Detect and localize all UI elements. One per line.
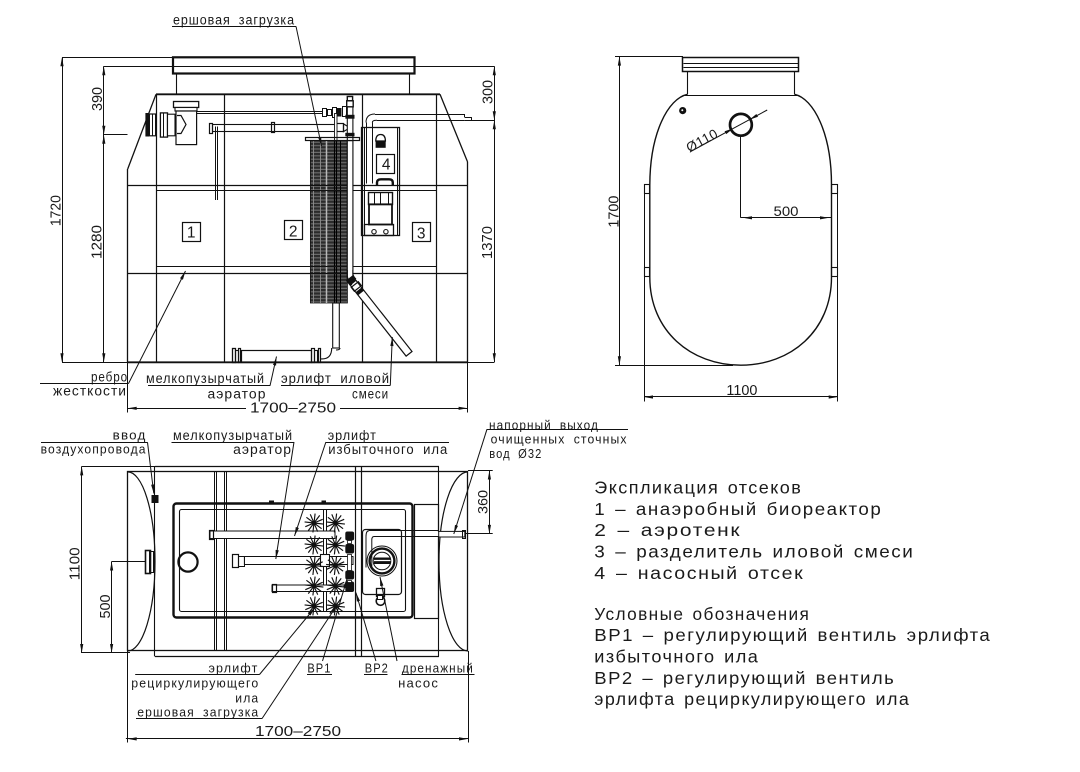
- svg-text:1720: 1720: [49, 195, 65, 226]
- svg-text:1370: 1370: [480, 226, 496, 259]
- svg-text:1 – анаэробный биореактор: 1 – анаэробный биореактор: [594, 499, 882, 519]
- svg-text:эрлифт: эрлифт: [328, 428, 377, 443]
- svg-text:1700: 1700: [607, 196, 623, 228]
- svg-text:мелкопузырчатый: мелкопузырчатый: [146, 371, 265, 386]
- svg-text:аэратор: аэратор: [208, 387, 267, 402]
- svg-text:вод Ø32: вод Ø32: [489, 446, 542, 461]
- svg-text:3 – разделитель иловой см: 3 – разделитель иловой смеси: [594, 542, 914, 562]
- svg-text:ершовая загрузка: ершовая загрузка: [173, 13, 295, 28]
- svg-text:1100: 1100: [726, 383, 757, 399]
- svg-text:мелкопузырчатый: мелкопузырчатый: [173, 428, 293, 443]
- svg-text:аэратор: аэратор: [233, 442, 292, 457]
- svg-text:рециркулирующего: рециркулирующего: [131, 676, 259, 691]
- svg-text:1100: 1100: [67, 547, 83, 580]
- svg-text:2: 2: [289, 223, 298, 240]
- svg-text:500: 500: [98, 595, 114, 619]
- svg-text:1700–2750: 1700–2750: [255, 724, 341, 740]
- svg-text:500: 500: [774, 203, 799, 219]
- svg-text:дренажный: дренажный: [402, 661, 474, 676]
- svg-text:жесткости: жесткости: [53, 384, 127, 399]
- svg-text:эрлифта рециркулирующего ила: эрлифта рециркулирующего ила: [594, 689, 910, 709]
- svg-text:насос: насос: [398, 676, 439, 691]
- svg-text:избыточного ила: избыточного ила: [594, 647, 759, 667]
- svg-text:эрлифт: эрлифт: [209, 661, 259, 676]
- svg-text:4: 4: [382, 156, 391, 173]
- svg-text:1700–2750: 1700–2750: [250, 401, 336, 417]
- svg-text:ершовая загрузка: ершовая загрузка: [137, 704, 259, 719]
- svg-text:ВР2: ВР2: [365, 661, 389, 676]
- svg-text:Условные обозначения: Условные обозначения: [594, 604, 810, 624]
- svg-text:очищенных сточных: очищенных сточных: [491, 432, 628, 447]
- svg-text:360: 360: [475, 490, 491, 514]
- svg-text:напорный выход: напорный выход: [489, 417, 599, 432]
- svg-text:300: 300: [481, 80, 497, 104]
- svg-text:1: 1: [187, 224, 196, 241]
- svg-text:воздухопровода: воздухопровода: [41, 441, 147, 456]
- svg-text:избыточного ила: избыточного ила: [328, 442, 448, 457]
- svg-text:Экспликация отсеков: Экспликация отсеков: [594, 478, 802, 498]
- svg-text:1280: 1280: [90, 225, 106, 259]
- svg-text:эрлифт иловой: эрлифт иловой: [281, 371, 390, 386]
- svg-text:390: 390: [90, 87, 106, 111]
- svg-text:ВР1 – регулирующий вентиль: ВР1 – регулирующий вентиль эрлифта: [594, 625, 991, 645]
- svg-text:2 – аэротенк: 2 – аэротенк: [594, 520, 741, 540]
- svg-text:смеси: смеси: [352, 387, 389, 402]
- svg-text:4 – насосный отсек: 4 – насосный отсек: [594, 563, 804, 583]
- svg-text:ребро: ребро: [91, 369, 128, 384]
- svg-text:ВР2 – регулирующий вентиль: ВР2 – регулирующий вентиль: [594, 668, 895, 688]
- svg-text:3: 3: [417, 225, 426, 242]
- svg-text:ВР1: ВР1: [307, 661, 331, 676]
